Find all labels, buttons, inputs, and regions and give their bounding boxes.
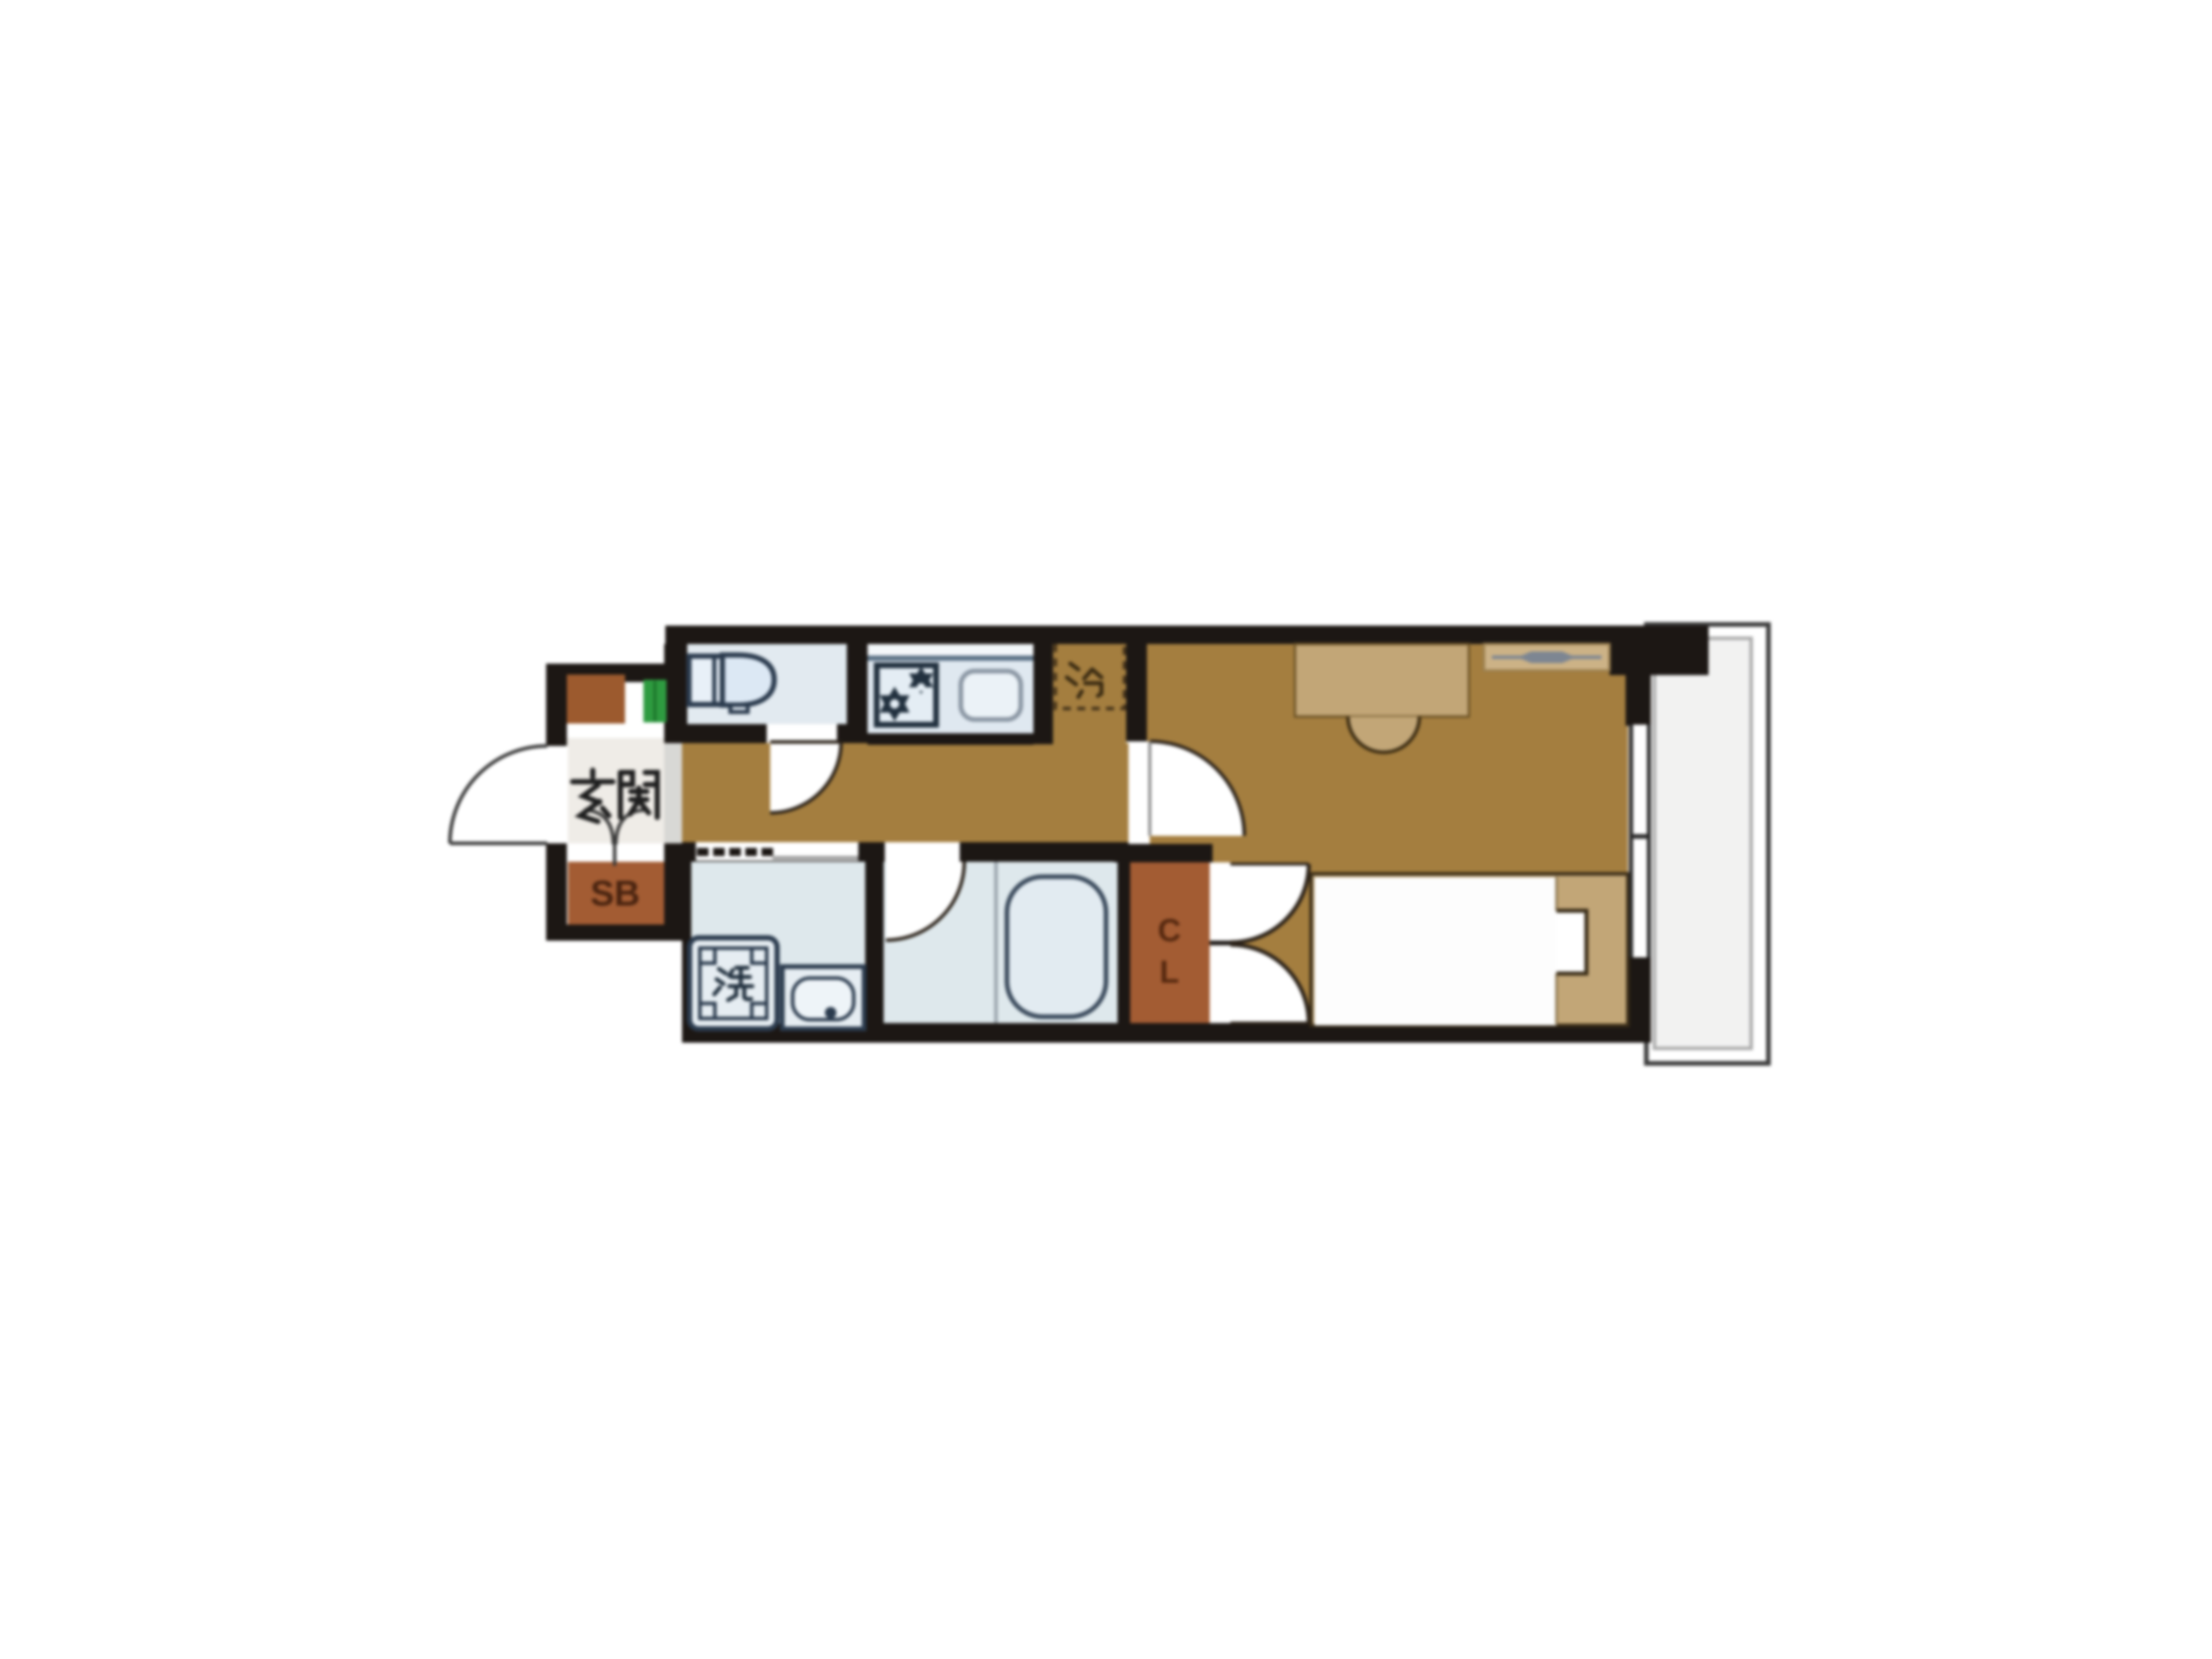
svg-text:L: L [1160,953,1179,990]
svg-text:SB: SB [590,874,640,914]
svg-text:C: C [1158,912,1181,948]
